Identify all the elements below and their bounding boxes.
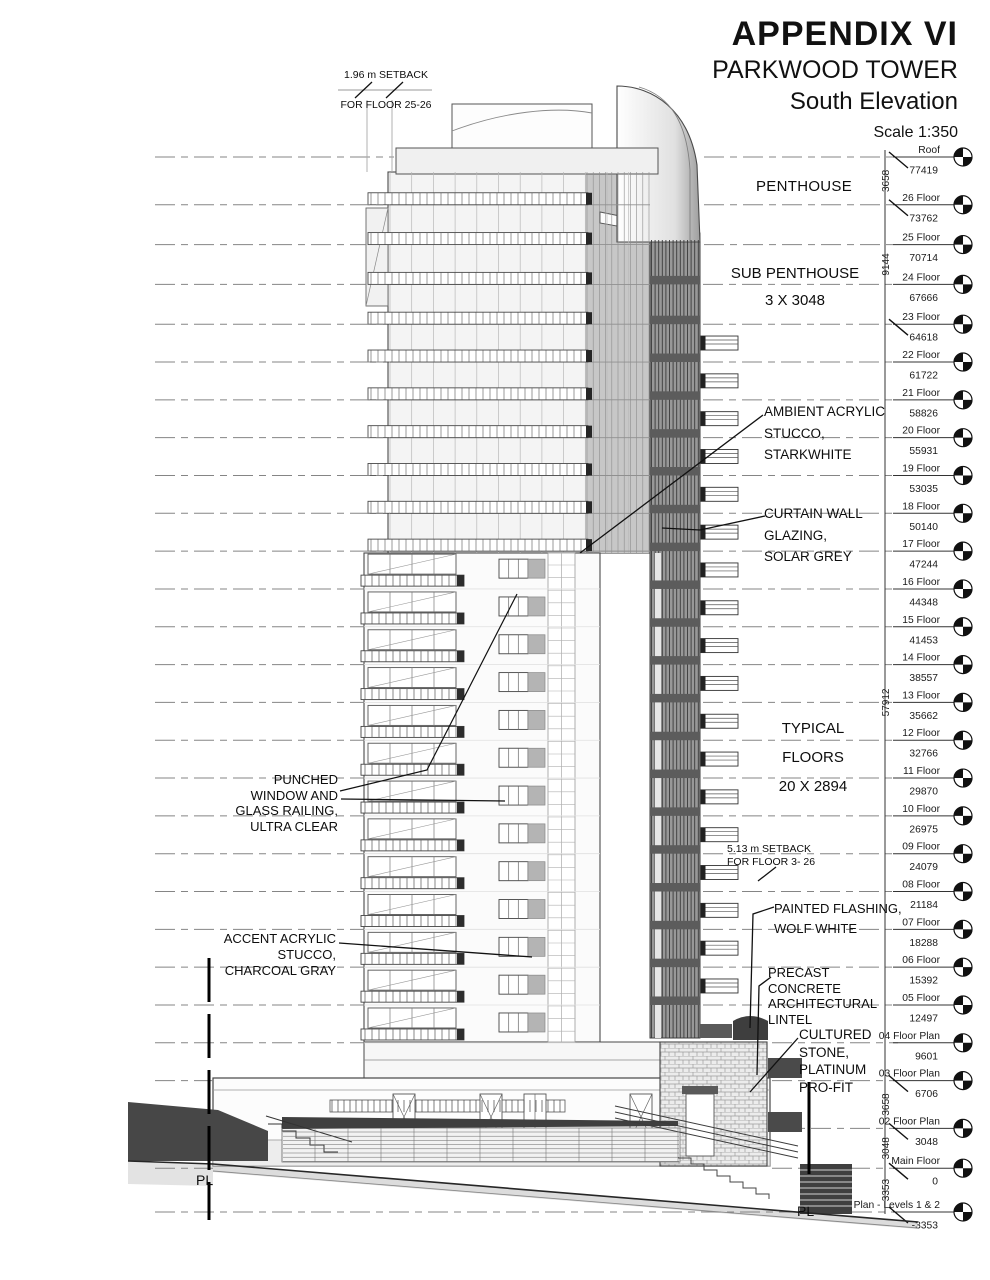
- level-target-icon: [963, 967, 972, 976]
- level-name: 26 Floor: [902, 193, 940, 204]
- accent-panel: [528, 900, 545, 919]
- level-target-icon: [963, 816, 972, 825]
- right-balcony: [701, 714, 738, 728]
- stone-lintel: [682, 1086, 718, 1094]
- level-target-icon: [954, 353, 963, 362]
- right-balcony-cap: [701, 866, 706, 880]
- balcony-slab: [361, 613, 464, 624]
- ambient-stucco-note: AMBIENT ACRYLIC STUCCO, STARKWHITE: [764, 401, 885, 466]
- level-name: 02 Floor Plan: [879, 1116, 941, 1127]
- typical-floors-note: TYPICAL FLOORS 20 X 2894: [750, 714, 876, 801]
- right-balcony: [701, 790, 738, 804]
- right-balcony-cap: [701, 412, 706, 426]
- level-name: 21 Floor: [902, 388, 940, 399]
- slab-cap: [586, 501, 592, 513]
- accent-stucco-note: ACCENT ACRYLIC STUCCO, CHARCOAL GRAY: [210, 931, 336, 979]
- level-name: 22 Floor: [902, 350, 940, 361]
- level-name: 16 Floor: [902, 577, 940, 588]
- level-elevation: 53035: [909, 484, 938, 495]
- punched-window: [499, 559, 528, 578]
- slab-cap: [457, 689, 464, 700]
- curtain-spandrel: [650, 316, 700, 325]
- title-block: APPENDIX VI PARKWOOD TOWER South Elevati…: [712, 16, 958, 142]
- balcony-slab: [368, 426, 588, 438]
- level-elevation: 35662: [909, 711, 938, 722]
- level-target-icon: [954, 580, 963, 589]
- accent-panel: [528, 673, 545, 692]
- right-balcony: [701, 412, 738, 426]
- curtain-spandrel: [650, 959, 700, 968]
- level-elevation: 29870: [909, 787, 938, 798]
- right-balcony-cap: [701, 525, 706, 539]
- level-elevation: 61722: [909, 371, 938, 382]
- level-name: 25 Floor: [902, 233, 940, 244]
- level-name: 07 Floor: [902, 917, 940, 928]
- punched-window: [499, 635, 528, 654]
- slab-cap: [586, 193, 592, 205]
- entry-canopy-upper: [768, 1058, 802, 1078]
- level-elevation: 44348: [909, 597, 938, 608]
- level-target-icon: [963, 551, 972, 560]
- balcony-slab: [368, 312, 588, 324]
- slab-cap: [457, 878, 464, 889]
- level-target-icon: [963, 892, 972, 901]
- level-name: 19 Floor: [902, 463, 940, 474]
- level-elevation: 21184: [910, 900, 938, 911]
- slab-cap: [457, 991, 464, 1002]
- slab-cap: [457, 840, 464, 851]
- appendix-title: APPENDIX VI: [712, 16, 958, 53]
- view-title: South Elevation: [712, 89, 958, 115]
- right-balcony-cap: [701, 336, 706, 350]
- punched-window: [499, 1013, 528, 1032]
- level-elevation: 47244: [909, 560, 938, 571]
- punched-window: [499, 710, 528, 729]
- level-target-icon: [954, 542, 963, 551]
- scale-label: Scale 1:350: [712, 124, 958, 142]
- level-target-icon: [954, 656, 963, 665]
- level-target-icon: [963, 1081, 972, 1090]
- curtain-spandrel: [650, 921, 700, 930]
- level-target-icon: [954, 996, 963, 1005]
- level-name: 24 Floor: [902, 272, 940, 283]
- right-balcony: [701, 525, 738, 539]
- setback-note-top: 1.96 m SETBACK FOR FLOOR 25-26: [338, 60, 434, 120]
- level-target-icon: [963, 1128, 972, 1137]
- right-balcony-cap: [701, 979, 706, 993]
- level-target-icon: [954, 429, 963, 438]
- punched-window: [499, 786, 528, 805]
- level-target-icon: [954, 1203, 963, 1212]
- balcony-slab: [368, 193, 588, 205]
- level-target-icon: [954, 807, 963, 816]
- punched-window: [499, 937, 528, 956]
- right-balcony-cap: [701, 903, 706, 917]
- level-elevation: 15392: [909, 976, 938, 987]
- level-name: Roof: [918, 145, 940, 156]
- accent-panel: [528, 710, 545, 729]
- curtain-spandrel: [650, 883, 700, 892]
- curtain-spandrel: [650, 807, 700, 816]
- right-balcony-cap: [701, 828, 706, 842]
- level-target-icon: [954, 1034, 963, 1043]
- cultured-stone-note: CULTURED STONE, PLATINUM PRO-FIT: [799, 1026, 872, 1096]
- level-target-icon: [963, 157, 972, 166]
- punched-window: [499, 900, 528, 919]
- slab-cap: [586, 233, 592, 245]
- right-balcony: [701, 449, 738, 463]
- right-balcony: [701, 374, 738, 388]
- level-target-icon: [963, 589, 972, 598]
- accent-panel: [528, 937, 545, 956]
- level-elevation: 24079: [909, 862, 938, 873]
- level-name: 23 Floor: [902, 312, 940, 323]
- balcony-slab: [368, 272, 588, 284]
- punched-window: [499, 673, 528, 692]
- level-elevation: 58826: [909, 408, 938, 419]
- right-balcony: [701, 487, 738, 501]
- level-elevation: 12497: [909, 1013, 938, 1024]
- punched-window: [499, 824, 528, 843]
- level-target-icon: [954, 883, 963, 892]
- right-balcony-cap: [701, 487, 706, 501]
- curtain-spandrel: [650, 354, 700, 363]
- right-balcony-cap: [701, 374, 706, 388]
- painted-flashing-note: PAINTED FLASHING, WOLF WHITE: [774, 899, 902, 939]
- level-target-icon: [954, 391, 963, 400]
- parkade-grille: [282, 1128, 680, 1162]
- level-target-icon: [963, 324, 972, 333]
- level-target-icon: [954, 275, 963, 284]
- sub-penthouse-label: SUB PENTHOUSE 3 X 3048: [729, 260, 861, 314]
- right-balcony: [701, 639, 738, 653]
- right-balcony: [701, 336, 738, 350]
- level-name: 13 Floor: [902, 690, 940, 701]
- balcony-slab: [368, 463, 588, 475]
- level-name: 04 Floor Plan: [879, 1031, 941, 1042]
- level-elevation: 18288: [909, 938, 938, 949]
- right-balcony-cap: [701, 790, 706, 804]
- setback-mid-tick: [758, 867, 776, 881]
- property-line-label-left: PL: [196, 1172, 213, 1188]
- level-target-icon: [963, 513, 972, 522]
- punched-window-note: PUNCHED WINDOW AND GLASS RAILING, ULTRA …: [218, 772, 338, 834]
- accent-panel: [528, 635, 545, 654]
- right-balcony-cap: [701, 752, 706, 766]
- curtain-spandrel: [650, 580, 700, 589]
- right-balcony: [701, 941, 738, 955]
- level-name: 11 Floor: [903, 766, 941, 777]
- slab-cap: [586, 312, 592, 324]
- curtain-spandrel: [650, 732, 700, 741]
- level-target-icon: [954, 466, 963, 475]
- punched-window: [499, 748, 528, 767]
- punched-window: [499, 862, 528, 881]
- level-target-icon: [954, 196, 963, 205]
- level-name: 06 Floor: [902, 955, 940, 966]
- slab-cap: [586, 272, 592, 284]
- level-elevation: 77419: [909, 166, 938, 177]
- penthouse-base: [396, 148, 658, 174]
- level-target-icon: [963, 778, 972, 787]
- level-target-icon: [954, 731, 963, 740]
- balcony-slab: [361, 575, 464, 586]
- curtain-wall-note: CURTAIN WALL GLAZING, SOLAR GREY: [764, 503, 863, 568]
- level4-balcony: [700, 1024, 732, 1038]
- level-elevation: 6706: [915, 1089, 938, 1100]
- accent-panel: [528, 597, 545, 616]
- slab-cap: [457, 1029, 464, 1040]
- accent-panel: [528, 559, 545, 578]
- right-balcony: [701, 979, 738, 993]
- level-name: 08 Floor: [902, 880, 940, 891]
- slab-cap: [457, 764, 464, 775]
- right-balcony: [701, 752, 738, 766]
- slab-cap: [586, 426, 592, 438]
- balcony-slab: [368, 539, 588, 551]
- slab-cap: [457, 953, 464, 964]
- slab-cap: [457, 613, 464, 624]
- level-target-icon: [963, 740, 972, 749]
- curtain-spandrel: [650, 391, 700, 400]
- level-elevation: 70714: [909, 253, 938, 264]
- level-name: 20 Floor: [902, 426, 940, 437]
- level-target-icon: [954, 920, 963, 929]
- punched-window: [499, 975, 528, 994]
- level-target-icon: [963, 475, 972, 484]
- level-name: 05 Floor: [902, 993, 940, 1004]
- level-elevation: 64618: [909, 333, 938, 344]
- level-name: 14 Floor: [902, 653, 940, 664]
- accent-panel: [528, 1013, 545, 1032]
- dimension-label: 3658: [881, 1093, 892, 1116]
- accent-panel: [528, 748, 545, 767]
- curtain-spandrel: [650, 845, 700, 854]
- dimension-label: 57912: [881, 688, 892, 716]
- level-target-icon: [963, 1168, 972, 1177]
- curtain-spandrel: [650, 694, 700, 703]
- balcony-slab: [368, 501, 588, 513]
- level-target-icon: [954, 618, 963, 627]
- level-target-icon: [954, 148, 963, 157]
- accent-panel: [528, 786, 545, 805]
- level-target-icon: [963, 362, 972, 371]
- balcony-slab: [361, 802, 464, 813]
- dimension-label: 3658: [881, 169, 892, 192]
- level-target-icon: [963, 205, 972, 214]
- balcony-slab: [368, 233, 588, 245]
- level-target-icon: [954, 504, 963, 513]
- level-elevation: 3048: [915, 1137, 938, 1148]
- level-target-icon: [963, 438, 972, 447]
- dimension-label: 3353: [881, 1179, 892, 1202]
- accent-panel: [528, 975, 545, 994]
- elevation-sheet: Roof7741926 Floor7376225 Floor7071424 Fl…: [0, 0, 990, 1280]
- slab-cap: [586, 388, 592, 400]
- right-balcony-cap: [701, 563, 706, 577]
- level-target-icon: [954, 1119, 963, 1128]
- balcony-slab: [361, 651, 464, 662]
- curtain-spandrel: [650, 656, 700, 665]
- balcony-slab: [361, 991, 464, 1002]
- penthouse-label: PENTHOUSE: [756, 179, 852, 195]
- setback-note-mid: 5.13 m SETBACK FOR FLOOR 3- 26: [727, 843, 815, 869]
- level-name: Main Floor: [891, 1156, 940, 1167]
- level-elevation: 9601: [915, 1051, 938, 1062]
- level-target-icon: [954, 845, 963, 854]
- level-target-icon: [963, 400, 972, 409]
- balcony-slab: [368, 350, 588, 362]
- level-target-icon: [954, 1159, 963, 1168]
- level-target-icon: [963, 702, 972, 711]
- level-elevation: 73762: [909, 213, 938, 224]
- curtain-spandrel: [650, 276, 700, 285]
- level-elevation: 67666: [909, 293, 938, 304]
- curtain-spandrel: [650, 618, 700, 627]
- level-tick: [889, 152, 908, 168]
- level-target-icon: [963, 284, 972, 293]
- level-target-icon: [954, 693, 963, 702]
- project-title: PARKWOOD TOWER: [712, 57, 958, 85]
- level-target-icon: [954, 958, 963, 967]
- level-elevation: 41453: [909, 635, 938, 646]
- balcony-slab: [361, 1029, 464, 1040]
- slab-cap: [457, 651, 464, 662]
- curtain-spandrel: [650, 770, 700, 779]
- level-target-icon: [954, 769, 963, 778]
- property-line-label-right: PL: [797, 1203, 814, 1219]
- level-name: 09 Floor: [902, 842, 940, 853]
- right-balcony: [701, 601, 738, 615]
- curtain-spandrel: [650, 429, 700, 438]
- slab-cap: [586, 350, 592, 362]
- balcony-slab: [361, 878, 464, 889]
- balcony-slab: [361, 689, 464, 700]
- level-target-icon: [963, 1212, 972, 1221]
- slab-cap: [586, 463, 592, 475]
- accent-panel: [528, 824, 545, 843]
- balcony-slab: [361, 953, 464, 964]
- balcony-slab: [368, 388, 588, 400]
- level-target-icon: [963, 1005, 972, 1014]
- level-elevation: 38557: [909, 673, 938, 684]
- right-balcony-cap: [701, 601, 706, 615]
- level-target-icon: [963, 627, 972, 636]
- level-elevation: 55931: [909, 446, 938, 457]
- level-elevation: 50140: [909, 522, 938, 533]
- right-balcony: [701, 828, 738, 842]
- right-balcony-cap: [701, 676, 706, 690]
- level-name: 15 Floor: [902, 615, 940, 626]
- right-balcony: [701, 563, 738, 577]
- right-balcony-cap: [701, 639, 706, 653]
- right-balcony-cap: [701, 714, 706, 728]
- dimension-label: 3048: [881, 1137, 892, 1160]
- entry-canopy-lower: [768, 1112, 802, 1132]
- curtain-spandrel: [650, 505, 700, 513]
- level-target-icon: [963, 665, 972, 674]
- level-target-icon: [954, 1072, 963, 1081]
- level-name: 18 Floor: [902, 501, 940, 512]
- level-name: 17 Floor: [902, 539, 940, 550]
- slab-cap: [457, 726, 464, 737]
- level-elevation: 0: [932, 1177, 938, 1188]
- accent-panel: [528, 862, 545, 881]
- level-name: 12 Floor: [902, 728, 940, 739]
- level-target-icon: [963, 929, 972, 938]
- level-name: 03 Floor Plan: [879, 1069, 941, 1080]
- balcony-slab: [361, 916, 464, 927]
- slab-cap: [457, 802, 464, 813]
- level-target-icon: [954, 315, 963, 324]
- level-target-icon: [963, 854, 972, 863]
- balcony-slab: [361, 840, 464, 851]
- right-balcony-cap: [701, 941, 706, 955]
- curtain-spandrel: [650, 996, 700, 1005]
- level-target-icon: [954, 236, 963, 245]
- slab-cap: [457, 575, 464, 586]
- curtain-spandrel: [650, 543, 700, 552]
- level-elevation: 32766: [909, 749, 938, 760]
- level-elevation: 26975: [909, 824, 938, 835]
- slab-cap: [457, 916, 464, 927]
- precast-lintel-note: PRECAST CONCRETE ARCHITECTURAL LINTEL: [768, 965, 877, 1027]
- level-target-icon: [963, 1043, 972, 1052]
- level-target-icon: [963, 245, 972, 254]
- right-balcony: [701, 903, 738, 917]
- level-name: 10 Floor: [902, 804, 940, 815]
- right-balcony: [701, 676, 738, 690]
- dimension-label: 9144: [881, 253, 892, 276]
